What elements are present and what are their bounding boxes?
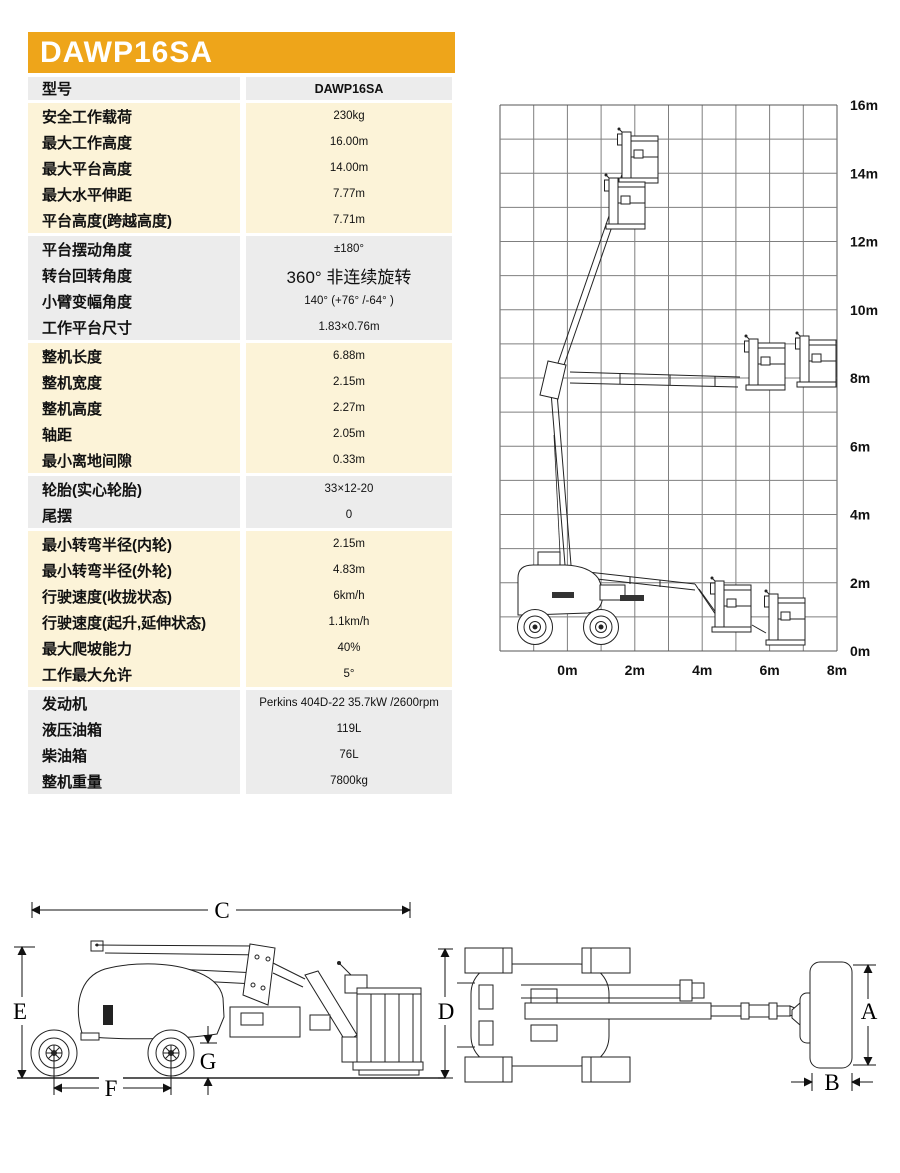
spec-value: 119L xyxy=(246,716,452,742)
spec-row: 液压油箱119L xyxy=(28,716,452,742)
spec-value: Perkins 404D-22 35.7kW /2600rpm xyxy=(246,690,452,716)
dim-label-F: F xyxy=(105,1076,118,1101)
spec-value: 1.83×0.76m xyxy=(246,314,452,340)
spec-label: 发动机 xyxy=(28,690,240,716)
y-tick-label: 12m xyxy=(850,234,878,250)
spec-row: 型号DAWP16SA xyxy=(28,77,452,100)
spec-row: 最大水平伸距7.77m xyxy=(28,181,452,207)
spec-label: 轮胎(实心轮胎) xyxy=(28,476,240,502)
spec-label: 最小转弯半径(内轮) xyxy=(28,531,240,557)
spec-row: 最大平台高度14.00m xyxy=(28,155,452,181)
side-view-machine xyxy=(17,941,445,1078)
spec-value: 5° xyxy=(246,661,452,687)
spec-label: 行驶速度(起升,延伸状态) xyxy=(28,609,240,635)
x-axis-labels: 0m2m4m6m8m xyxy=(557,662,847,678)
spec-row: 最大工作高度16.00m xyxy=(28,129,452,155)
spec-value: 76L xyxy=(246,742,452,768)
spec-row: 整机重量7800kg xyxy=(28,768,452,794)
spec-value: 140° (+76° /-64° ) xyxy=(246,288,452,314)
spec-value: 6.88m xyxy=(246,343,452,369)
spec-value: 360° 非连续旋转 xyxy=(246,262,452,288)
spec-value: ±180° xyxy=(246,236,452,262)
spec-row: 工作平台尺寸1.83×0.76m xyxy=(28,314,452,340)
spec-label: 行驶速度(收拢状态) xyxy=(28,583,240,609)
spec-row: 柴油箱76L xyxy=(28,742,452,768)
dimension-top-view: D A B xyxy=(435,885,900,1120)
spec-group: 轮胎(实心轮胎)33×12-20尾摆0 xyxy=(28,476,452,528)
spec-value: 7.77m xyxy=(246,181,452,207)
spec-value: 2.15m xyxy=(246,531,452,557)
spec-label: 尾摆 xyxy=(28,502,240,528)
spec-value: 230kg xyxy=(246,103,452,129)
top-view-machine xyxy=(457,948,852,1082)
spec-row: 小臂变幅角度140° (+76° /-64° ) xyxy=(28,288,452,314)
y-tick-label: 0m xyxy=(850,643,870,659)
spec-value: 2.27m xyxy=(246,395,452,421)
working-envelope-chart: 16m14m12m10m8m6m4m2m0m 0m2m4m6m8m xyxy=(470,95,900,680)
x-tick-label: 4m xyxy=(692,662,712,678)
spec-label: 最小离地间隙 xyxy=(28,447,240,473)
spec-label: 安全工作载荷 xyxy=(28,103,240,129)
spec-value: 14.00m xyxy=(246,155,452,181)
basket-position-low-2 xyxy=(765,590,806,646)
x-tick-label: 6m xyxy=(759,662,779,678)
spec-label: 平台高度(跨越高度) xyxy=(28,207,240,233)
y-tick-label: 8m xyxy=(850,370,870,386)
x-tick-label: 2m xyxy=(625,662,645,678)
spec-row: 平台高度(跨越高度)7.71m xyxy=(28,207,452,233)
dim-label-A: A xyxy=(861,999,878,1024)
spec-value: 7.71m xyxy=(246,207,452,233)
basket-position-upper xyxy=(605,174,646,230)
spec-row: 整机高度2.27m xyxy=(28,395,452,421)
spec-value: 33×12-20 xyxy=(246,476,452,502)
side-view-svg: C E F G xyxy=(5,885,450,1120)
spec-group: 安全工作载荷230kg最大工作高度16.00m最大平台高度14.00m最大水平伸… xyxy=(28,103,452,233)
model-banner: DAWP16SA xyxy=(28,32,455,73)
spec-label: 工作最大允许 xyxy=(28,661,240,687)
spec-label: 液压油箱 xyxy=(28,716,240,742)
spec-label: 型号 xyxy=(28,77,240,100)
spec-value: 0 xyxy=(246,502,452,528)
basket-position-top xyxy=(618,128,659,184)
spec-row: 行驶速度(起升,延伸状态)1.1km/h xyxy=(28,609,452,635)
spec-label: 最大爬坡能力 xyxy=(28,635,240,661)
basket-position-low-1 xyxy=(711,577,752,633)
y-tick-label: 4m xyxy=(850,507,870,523)
spec-label: 最大平台高度 xyxy=(28,155,240,181)
spec-row: 轮胎(实心轮胎)33×12-20 xyxy=(28,476,452,502)
spec-label: 转台回转角度 xyxy=(28,262,240,288)
spec-label: 最大水平伸距 xyxy=(28,181,240,207)
y-tick-label: 16m xyxy=(850,97,878,113)
spec-row: 平台摆动角度±180° xyxy=(28,236,452,262)
y-tick-label: 6m xyxy=(850,438,870,454)
spec-group: 最小转弯半径(内轮)2.15m最小转弯半径(外轮)4.83m行驶速度(收拢状态)… xyxy=(28,531,452,687)
dim-label-E: E xyxy=(13,999,27,1024)
dim-label-D: D xyxy=(438,999,455,1024)
spec-label: 整机重量 xyxy=(28,768,240,794)
dimension-side-view: C E F G xyxy=(5,885,450,1120)
spec-value: DAWP16SA xyxy=(246,77,452,100)
spec-row: 转台回转角度360° 非连续旋转 xyxy=(28,262,452,288)
model-banner-text: DAWP16SA xyxy=(40,36,213,69)
spec-row: 轴距2.05m xyxy=(28,421,452,447)
spec-label: 最小转弯半径(外轮) xyxy=(28,557,240,583)
top-view-svg: D A B xyxy=(435,885,900,1120)
spec-row: 安全工作载荷230kg xyxy=(28,103,452,129)
spec-row: 最小离地间隙0.33m xyxy=(28,447,452,473)
dim-label-B: B xyxy=(824,1070,839,1095)
spec-value: 7800kg xyxy=(246,768,452,794)
spec-label: 小臂变幅角度 xyxy=(28,288,240,314)
y-tick-label: 2m xyxy=(850,575,870,591)
spec-value: 1.1km/h xyxy=(246,609,452,635)
spec-label: 柴油箱 xyxy=(28,742,240,768)
spec-group: 型号DAWP16SA xyxy=(28,77,452,100)
dim-label-G: G xyxy=(200,1049,217,1074)
working-envelope: 16m14m12m10m8m6m4m2m0m 0m2m4m6m8m xyxy=(470,95,900,680)
spec-row: 整机长度6.88m xyxy=(28,343,452,369)
spec-table: 型号DAWP16SA安全工作载荷230kg最大工作高度16.00m最大平台高度1… xyxy=(28,77,452,797)
x-tick-label: 0m xyxy=(557,662,577,678)
spec-group: 整机长度6.88m整机宽度2.15m整机高度2.27m轴距2.05m最小离地间隙… xyxy=(28,343,452,473)
spec-value: 0.33m xyxy=(246,447,452,473)
spec-label: 整机长度 xyxy=(28,343,240,369)
basket-position-outreach-2 xyxy=(796,332,837,388)
machine-drawing xyxy=(518,165,767,645)
x-tick-label: 8m xyxy=(827,662,847,678)
y-tick-label: 10m xyxy=(850,302,878,318)
spec-row: 尾摆0 xyxy=(28,502,452,528)
spec-row: 最小转弯半径(外轮)4.83m xyxy=(28,557,452,583)
spec-row: 最小转弯半径(内轮)2.15m xyxy=(28,531,452,557)
basket-position-outreach-1 xyxy=(745,335,786,391)
spec-label: 工作平台尺寸 xyxy=(28,314,240,340)
spec-label: 最大工作高度 xyxy=(28,129,240,155)
dim-label-C: C xyxy=(214,898,229,923)
spec-value: 4.83m xyxy=(246,557,452,583)
y-tick-label: 14m xyxy=(850,165,878,181)
spec-value: 2.15m xyxy=(246,369,452,395)
spec-row: 最大爬坡能力40% xyxy=(28,635,452,661)
spec-value: 40% xyxy=(246,635,452,661)
spec-row: 行驶速度(收拢状态)6km/h xyxy=(28,583,452,609)
spec-label: 轴距 xyxy=(28,421,240,447)
y-axis-labels: 16m14m12m10m8m6m4m2m0m xyxy=(850,97,878,659)
spec-group: 发动机Perkins 404D-22 35.7kW /2600rpm液压油箱11… xyxy=(28,690,452,794)
spec-value: 2.05m xyxy=(246,421,452,447)
spec-row: 工作最大允许5° xyxy=(28,661,452,687)
spec-label: 整机宽度 xyxy=(28,369,240,395)
spec-row: 整机宽度2.15m xyxy=(28,369,452,395)
spec-label: 整机高度 xyxy=(28,395,240,421)
spec-group: 平台摆动角度±180°转台回转角度360° 非连续旋转小臂变幅角度140° (+… xyxy=(28,236,452,340)
spec-value: 16.00m xyxy=(246,129,452,155)
spec-row: 发动机Perkins 404D-22 35.7kW /2600rpm xyxy=(28,690,452,716)
spec-value: 6km/h xyxy=(246,583,452,609)
spec-label: 平台摆动角度 xyxy=(28,236,240,262)
